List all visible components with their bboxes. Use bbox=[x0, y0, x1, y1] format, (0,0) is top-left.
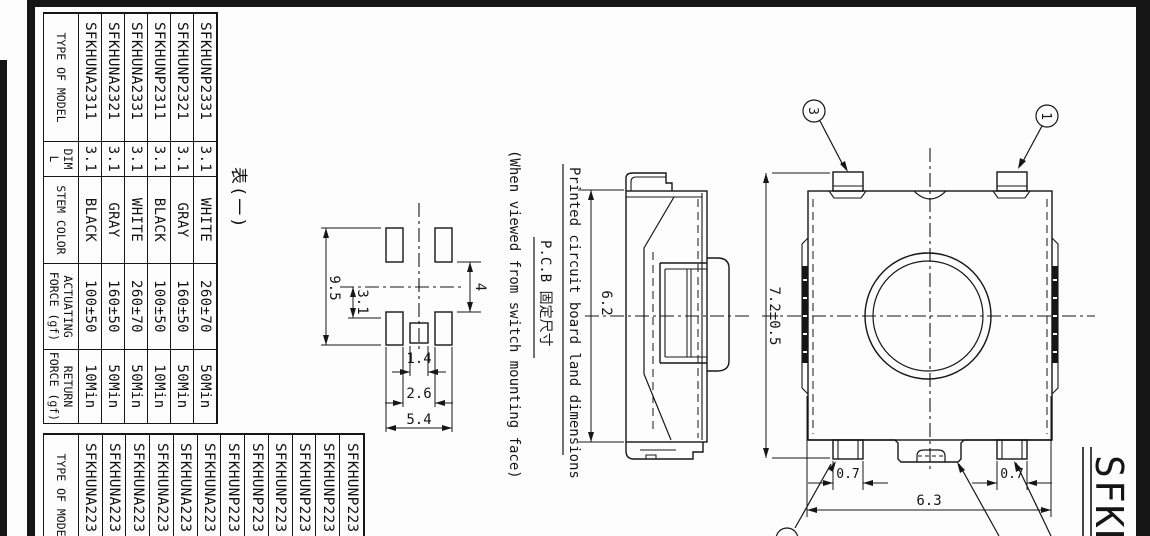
actuating-force-cell: 100±50 bbox=[147, 264, 170, 350]
header-dim-l: DIM L bbox=[43, 142, 78, 177]
model-cell: SFKHUNP223 bbox=[221, 435, 245, 536]
stem-color-cell: GRAY bbox=[101, 177, 124, 264]
model-cell: SFKHUNP2321 bbox=[170, 14, 193, 142]
model-cell: SFKHUNA223 bbox=[197, 435, 221, 536]
header-type-of-model: TYPE OF MODEL bbox=[43, 435, 78, 536]
caption-block: Printed circuit board land dimensions P.… bbox=[506, 150, 582, 479]
frame-top-bar bbox=[27, 0, 1148, 7]
table-label: 表(一) bbox=[228, 167, 253, 229]
pcb-dimension-arrows bbox=[323, 228, 473, 431]
model-cell: SFKHUNA223 bbox=[149, 435, 173, 536]
model-cell: SFKHUNA223 bbox=[102, 435, 126, 536]
dim-pcb-pitch: 4 bbox=[472, 283, 488, 291]
frame-outer-left-bar bbox=[0, 60, 7, 536]
header-actuating-force: ACTUATING FORCE (gf) bbox=[43, 264, 78, 350]
model-cell: SFKHUNP2331 bbox=[193, 14, 216, 142]
dim-pad-width: 1.4 bbox=[406, 351, 431, 367]
actuating-force-cell: 260±70 bbox=[124, 264, 147, 350]
stem-color-cell: GRAY bbox=[170, 177, 193, 264]
model-cell: SFKHUNA223 bbox=[173, 435, 197, 536]
cover-bent-tab bbox=[626, 173, 672, 191]
pcb-land-pattern bbox=[340, 203, 462, 352]
header-return-force: RETURN FORCE (gf) bbox=[43, 350, 78, 424]
frame-right-bar bbox=[1136, 0, 1150, 536]
switch-side-view bbox=[585, 173, 750, 459]
cover-bent-tab-inner bbox=[631, 177, 666, 191]
model-cell: SFKHUNP223 bbox=[339, 435, 363, 536]
return-force-cell: 50Min bbox=[101, 350, 124, 424]
model-cell: SFKHUNP223 bbox=[244, 435, 268, 536]
model-spec-table: SFKHUNP2331 3.1 WHITE 260±70 50Min SFKHU… bbox=[43, 12, 218, 424]
dim-terminal-right: 0.7 bbox=[1000, 467, 1023, 482]
return-force-cell: 50Min bbox=[124, 350, 147, 424]
model-cell: SFKHUNP223 bbox=[268, 435, 292, 536]
return-force-cell: 10Min bbox=[78, 350, 101, 424]
frame-left-bar bbox=[27, 0, 35, 536]
dim-l-cell: 3.1 bbox=[124, 142, 147, 177]
dim-l-cell: 3.1 bbox=[193, 142, 216, 177]
stem-outline bbox=[660, 263, 707, 363]
model-cell: SFKHUNP223 bbox=[316, 435, 340, 536]
pad-bottom-left bbox=[386, 312, 403, 345]
terminal-3 bbox=[833, 172, 863, 191]
pcb-dimension-lines bbox=[321, 228, 481, 432]
dim-body-width: 6.3 bbox=[916, 493, 941, 509]
model-cell: SFKHUNA2331 bbox=[124, 14, 147, 142]
dim-pad-gap: 2.6 bbox=[406, 386, 431, 402]
dim-l-cell: 3.1 bbox=[101, 142, 124, 177]
pad-bottom-right bbox=[435, 312, 452, 345]
header-stem-color: STEM COLOR bbox=[43, 177, 78, 264]
top-view-dimension-lines bbox=[766, 173, 1052, 517]
model-table-2: SFKHUNP223 SFKHUNP223 SFKHUNP223 SFKHUNP… bbox=[43, 433, 365, 536]
dim-pcb-offset: 3.1 bbox=[354, 289, 370, 314]
stem-cap bbox=[707, 258, 729, 371]
dim-l-cell: 3.1 bbox=[170, 142, 193, 177]
pad-top-left bbox=[386, 228, 403, 262]
stem-color-cell: BLACK bbox=[147, 177, 170, 264]
caption-line1: Printed circuit board land dimensions bbox=[566, 167, 582, 479]
stem-shaft bbox=[687, 269, 691, 357]
model-cell: SFKHUNA2311 bbox=[78, 14, 101, 142]
stem-color-cell: WHITE bbox=[124, 177, 147, 264]
pad-top-right bbox=[435, 228, 452, 262]
datasheet-sheet: 9.5 3.1 4 1.4 2.6 5.4 6.2 7.2±0.5 6.3 0.… bbox=[0, 0, 1150, 536]
switch-top-view bbox=[762, 148, 1095, 472]
caption-line2: P.C.B 固定尺寸 bbox=[537, 240, 553, 347]
header-type-of-model: TYPE OF MODEL bbox=[43, 14, 78, 142]
model-cell: SFKHUNA223 bbox=[78, 435, 102, 536]
dim-pad-span: 5.4 bbox=[406, 412, 431, 428]
return-force-cell: 50Min bbox=[170, 350, 193, 424]
model-cell: SFKHUNA2321 bbox=[101, 14, 124, 142]
terminal-1 bbox=[997, 172, 1027, 191]
actuating-force-cell: 260±70 bbox=[193, 264, 216, 350]
dim-side-depth: 6.2 bbox=[598, 290, 614, 315]
dim-pcb-overall: 9.5 bbox=[326, 275, 342, 300]
sheet-title: SFKH bbox=[1087, 455, 1131, 536]
model-cell: SFKHUNP223 bbox=[292, 435, 316, 536]
model-cell: SFKHUNP2311 bbox=[147, 14, 170, 142]
model-cell: SFKHUNA223 bbox=[126, 435, 150, 536]
balloon-1-number: 1 bbox=[1038, 112, 1053, 120]
stem-color-cell: BLACK bbox=[78, 177, 101, 264]
dim-l-cell: 3.1 bbox=[147, 142, 170, 177]
cover-fold-line bbox=[644, 197, 674, 440]
actuating-force-cell: 160±50 bbox=[170, 264, 193, 350]
dimension-texts: 9.5 3.1 4 1.4 2.6 5.4 6.2 7.2±0.5 6.3 0.… bbox=[326, 107, 1053, 509]
actuating-force-cell: 160±50 bbox=[101, 264, 124, 350]
caption-line3: (When viewed from switch mounting face) bbox=[506, 150, 522, 479]
dim-body-height: 7.2±0.5 bbox=[766, 286, 782, 345]
balloon-clipped-circle bbox=[776, 528, 798, 536]
dim-l-cell: 3.1 bbox=[78, 142, 101, 177]
stem-color-cell: WHITE bbox=[193, 177, 216, 264]
return-force-cell: 10Min bbox=[147, 350, 170, 424]
actuating-force-cell: 100±50 bbox=[78, 264, 101, 350]
dim-terminal-left: 0.7 bbox=[836, 467, 859, 482]
return-force-cell: 50Min bbox=[193, 350, 216, 424]
balloon-3-number: 3 bbox=[805, 107, 820, 115]
